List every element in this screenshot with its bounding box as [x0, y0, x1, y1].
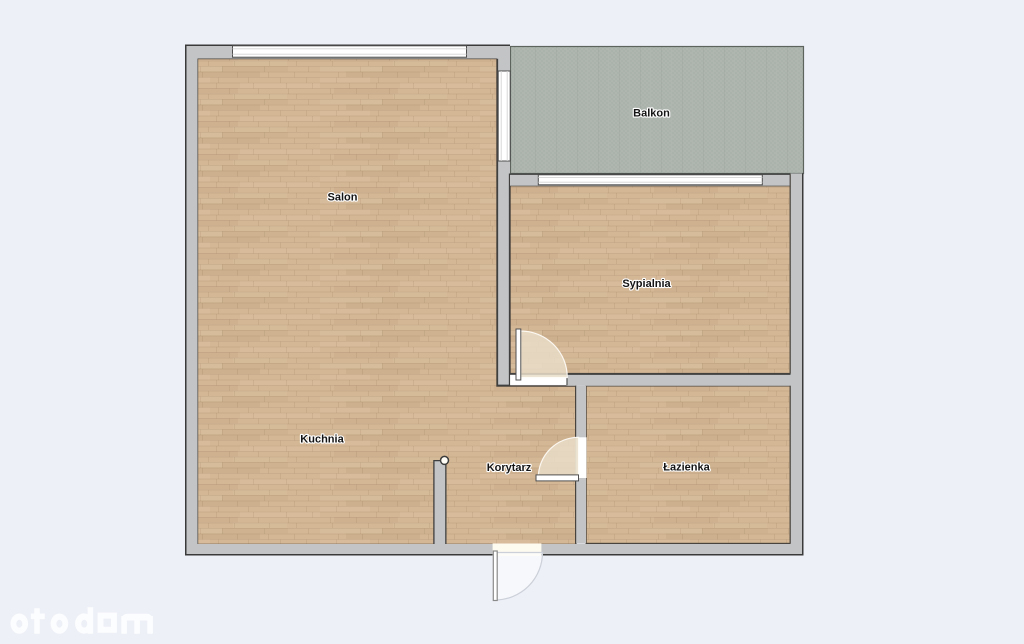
- svg-text:Salon: Salon: [328, 192, 358, 204]
- svg-text:Balkon: Balkon: [633, 108, 670, 120]
- svg-text:Sypialnia: Sypialnia: [622, 278, 671, 290]
- svg-text:Łazienka: Łazienka: [663, 462, 710, 474]
- svg-text:Kuchnia: Kuchnia: [300, 434, 344, 446]
- svg-text:Korytarz: Korytarz: [487, 462, 532, 474]
